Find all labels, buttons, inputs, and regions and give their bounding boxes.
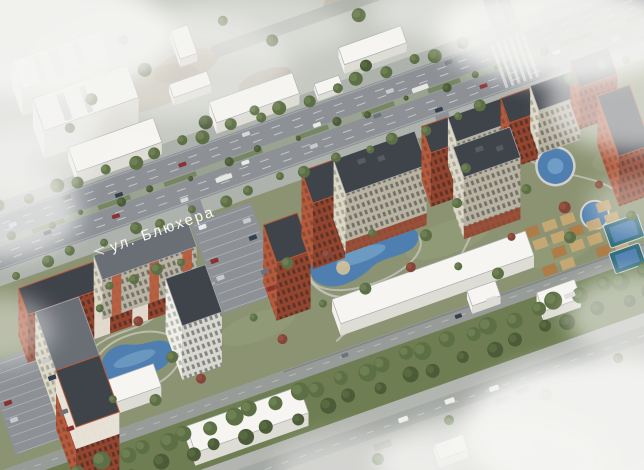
- scene-svg: ул. Блюхера: [0, 0, 644, 470]
- aerial-render: ул. Блюхера: [0, 0, 644, 470]
